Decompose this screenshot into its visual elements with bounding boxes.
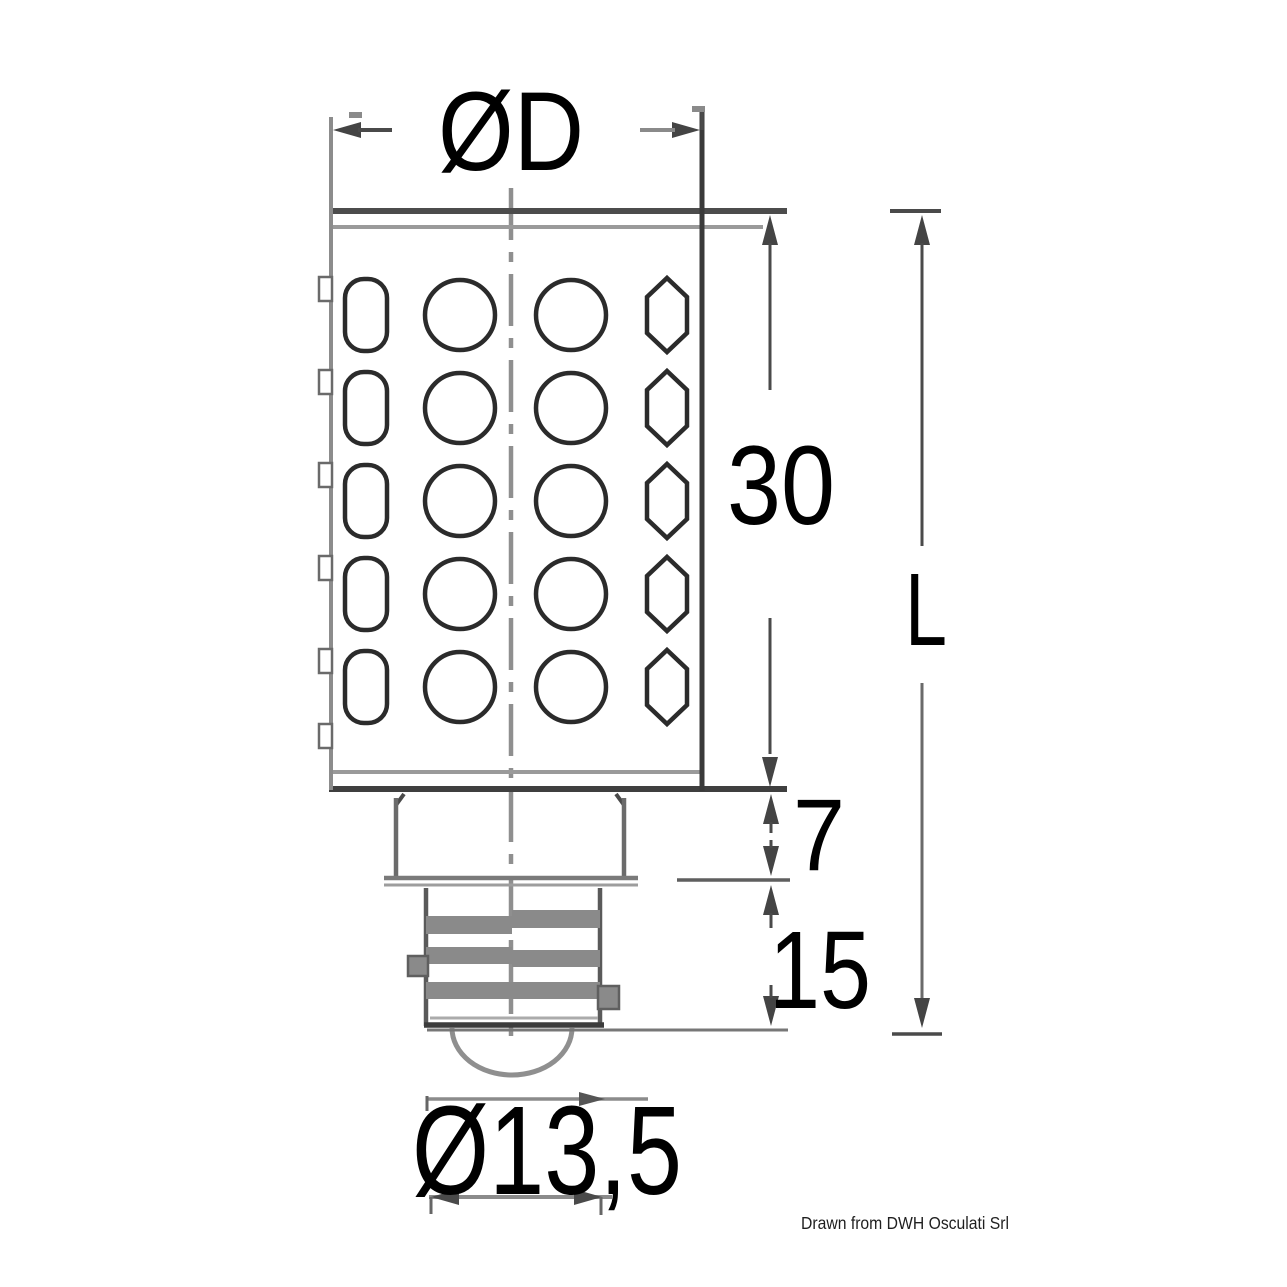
dim-body-length: 30 [727, 215, 835, 787]
led-side [345, 558, 387, 630]
bayonet-base [408, 888, 619, 1075]
dim-top-diameter: ØD [333, 69, 705, 194]
led-circle [536, 559, 606, 629]
led-side [647, 278, 687, 352]
led-circle [536, 466, 606, 536]
technical-drawing: ØD 30 L 7 15 [0, 0, 1287, 1287]
dim-overall-length: L [890, 211, 947, 1034]
body-notch [319, 556, 332, 580]
dim-neck-length: 7 [677, 778, 845, 892]
led-side [345, 372, 387, 444]
label-base-diameter: Ø13,5 [412, 1080, 682, 1221]
led-circle [425, 559, 495, 629]
body-notch [319, 277, 332, 301]
base-thread-band [426, 982, 600, 999]
led-circle [425, 280, 495, 350]
body-notch [319, 649, 332, 673]
label-base-length: 15 [769, 909, 871, 1032]
label-overall-length: L [905, 552, 947, 667]
label-top-diameter: ØD [438, 69, 584, 194]
led-side [647, 464, 687, 538]
body-notch [319, 370, 332, 394]
led-side [345, 465, 387, 537]
body-notch [319, 724, 332, 748]
drawing-canvas: ØD 30 L 7 15 [0, 0, 1287, 1287]
led-side [647, 557, 687, 631]
bayonet-pin-right [598, 986, 619, 1009]
led-circle [536, 652, 606, 722]
base-thread-band [512, 950, 600, 967]
led-circle [425, 373, 495, 443]
body-notch [319, 463, 332, 487]
led-side [345, 279, 387, 351]
bayonet-pin-left [408, 956, 428, 976]
led-grid [345, 278, 687, 724]
label-neck-length: 7 [793, 778, 845, 892]
label-body-length: 30 [727, 423, 835, 548]
footer-credit: Drawn from DWH Osculati Srl [801, 1213, 1009, 1233]
led-side [647, 371, 687, 445]
led-circle [536, 373, 606, 443]
base-thread-band [426, 916, 512, 934]
base-thread-bands [426, 910, 600, 999]
base-thread-band [512, 910, 600, 928]
led-side [647, 650, 687, 724]
led-circle [425, 466, 495, 536]
dim-base-diameter: Ø13,5 [412, 1080, 682, 1221]
led-circle [425, 652, 495, 722]
led-circle [536, 280, 606, 350]
led-side [345, 651, 387, 723]
base-thread-band [426, 947, 512, 964]
